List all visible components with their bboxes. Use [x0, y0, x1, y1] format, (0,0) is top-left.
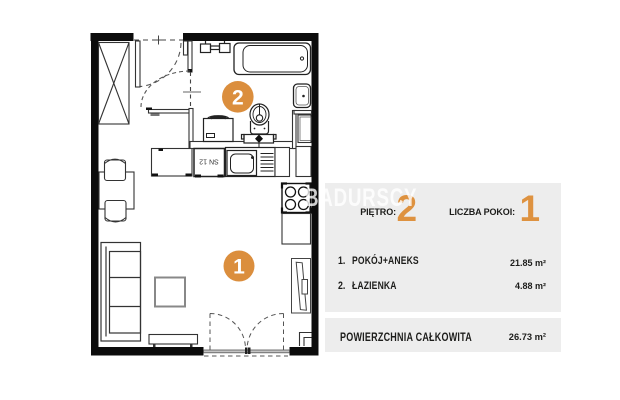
svg-text:SN 12: SN 12 — [199, 158, 219, 165]
svg-text:2: 2 — [232, 86, 244, 109]
svg-text:1: 1 — [233, 256, 245, 279]
